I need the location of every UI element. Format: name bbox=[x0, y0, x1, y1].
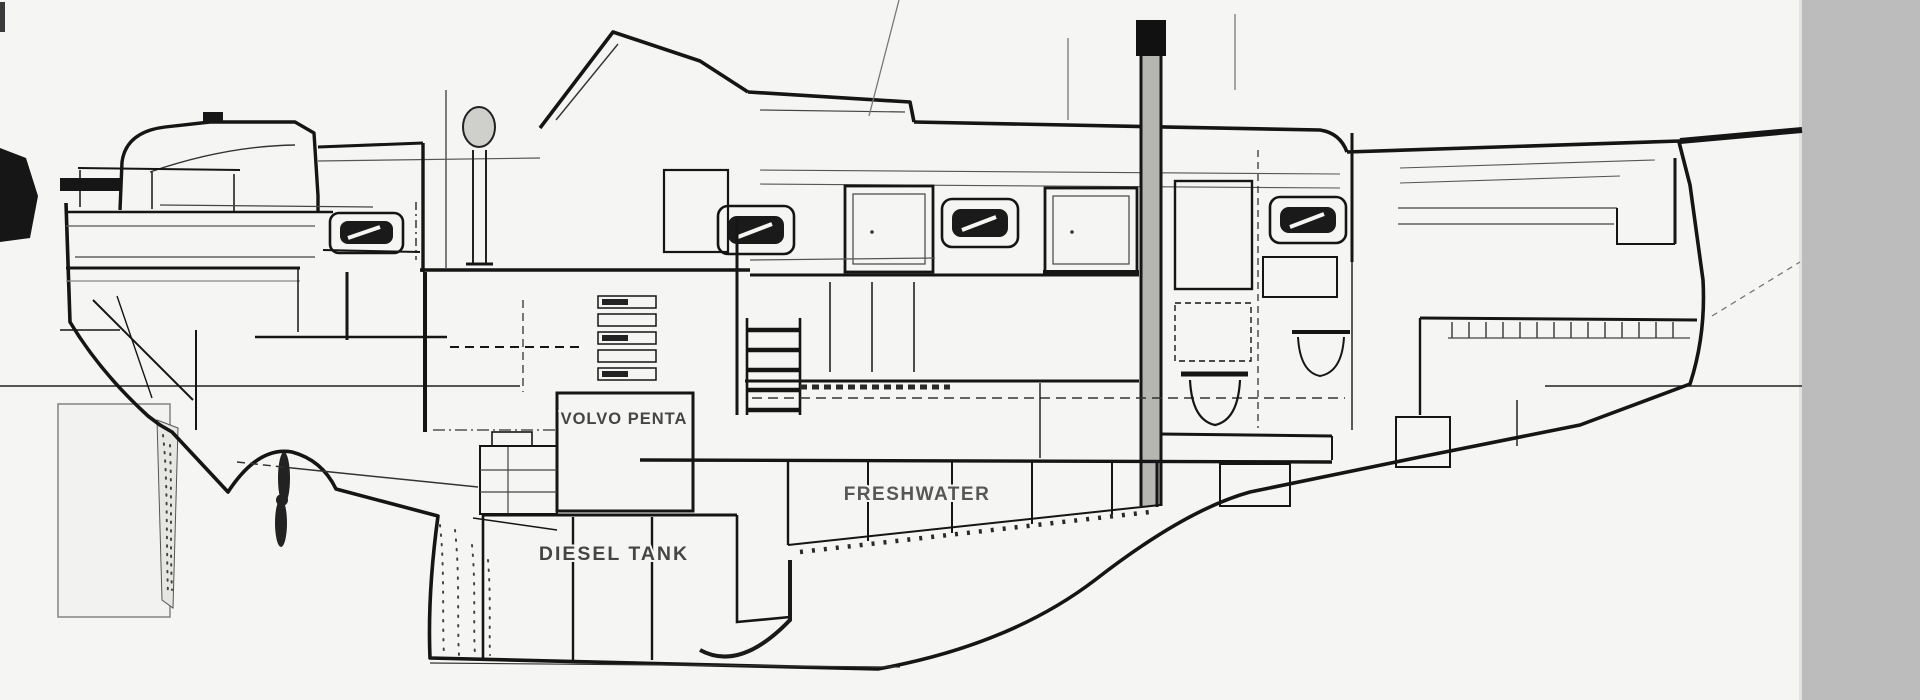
diesel-tank-label: DIESEL TANK bbox=[539, 543, 689, 565]
binnacle-compass bbox=[463, 107, 495, 147]
engine-label: VOLVO PENTA bbox=[561, 410, 688, 428]
masthead bbox=[1136, 20, 1166, 56]
boat-profile-diagram: VOLVO PENTA DIESEL TANK FRESHWATER bbox=[0, 0, 1920, 700]
scanned-boat-drawing-page: VOLVO PENTA DIESEL TANK FRESHWATER bbox=[0, 0, 1920, 700]
rudder-blade bbox=[58, 404, 170, 617]
scan-edge-mark bbox=[0, 2, 5, 32]
scan-bar-edge bbox=[1799, 0, 1802, 700]
paper-background bbox=[0, 0, 1920, 700]
freshwater-label: FRESHWATER bbox=[844, 484, 991, 505]
scan-gray-bar bbox=[1802, 0, 1920, 700]
